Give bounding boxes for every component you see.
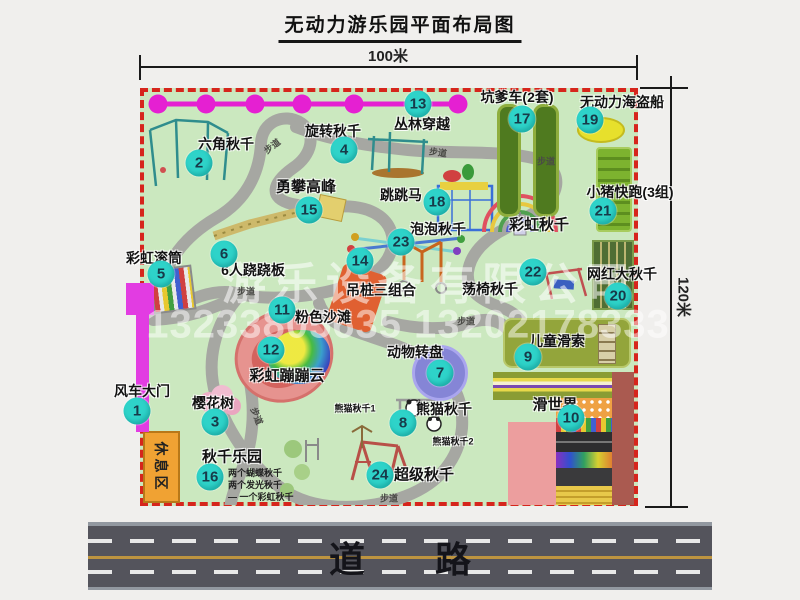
park-layout-plan: 无动力游乐园平面布局图 100米 120米 (0, 0, 800, 600)
attraction-label-14: 吊桩三组合 (346, 280, 416, 300)
attraction-label: 熊猫秋千2 (432, 435, 473, 448)
attraction-label-4: 旋转秋千 (305, 121, 361, 141)
attraction-number-22: 22 (520, 259, 547, 286)
road: 道路 (88, 522, 712, 590)
slide-band-rainbow-gradient (556, 452, 612, 468)
slide-band-yellow-wavy (556, 486, 612, 505)
dim-top-line (140, 66, 637, 68)
dim-right-tick-top2 (670, 76, 672, 100)
attraction-number-23: 23 (388, 229, 415, 256)
attraction-number-3: 3 (202, 409, 229, 436)
attraction-label-11: 粉色沙滩 (295, 307, 351, 327)
attraction-number-2: 2 (186, 150, 213, 177)
slide-world-pink-pad (508, 422, 556, 505)
attraction-label-8: 熊猫秋千 (416, 399, 472, 419)
road-label: 道路 (259, 531, 541, 583)
attraction-number-12: 12 (258, 337, 285, 364)
swing-park-note-3: — 一个彩虹秋千 (228, 490, 294, 503)
walkway-label: 步道 (380, 492, 398, 505)
attraction-number-1: 1 (124, 398, 151, 425)
slide-band-black (556, 432, 612, 452)
dim-right-label: 120米 (674, 277, 695, 317)
attraction-number-15: 15 (296, 197, 323, 224)
attraction-label-17: 坑爹车(2套) (480, 87, 553, 107)
attraction-number-6: 6 (211, 241, 238, 268)
walkway-label: 步道 (537, 155, 555, 168)
attraction-label-20: 网红大秋千 (587, 264, 657, 284)
windmill-gate-top (126, 283, 154, 315)
walkway-label: 步道 (237, 285, 255, 298)
attraction-label-23: 泡泡秋千 (410, 219, 466, 239)
slide-world-side-strip (612, 372, 634, 505)
dim-top-label: 100米 (368, 45, 408, 66)
attraction-label-15: 勇攀高峰 (276, 176, 336, 197)
attraction-label-18: 跳跳马 (380, 185, 422, 205)
attraction-label-22: 荡椅秋千 (462, 279, 518, 299)
attraction-number-21: 21 (590, 198, 617, 225)
attraction-number-8: 8 (390, 410, 417, 437)
walkway-label: 步道 (428, 144, 448, 159)
zipline-ladder (598, 324, 616, 364)
dim-right-line (670, 88, 672, 507)
attraction-label-12: 彩虹蹦蹦云 (249, 365, 324, 386)
attraction-number-11: 11 (269, 297, 296, 324)
attraction-number-9: 9 (515, 344, 542, 371)
attraction-number-14: 14 (347, 248, 374, 275)
attraction-number-17: 17 (509, 106, 536, 133)
dim-right-tick-top (640, 87, 688, 89)
attraction-number-18: 18 (424, 189, 451, 216)
rest-area-label: 休息区 (151, 442, 171, 493)
attraction-number-20: 20 (605, 283, 632, 310)
attraction-number-16: 16 (197, 464, 224, 491)
attraction-number-4: 4 (331, 137, 358, 164)
attraction-number-7: 7 (427, 360, 454, 387)
dim-right-tick-bottom (645, 506, 688, 508)
attraction-label-13: 丛林穿越 (394, 114, 450, 134)
slide-band-dark (556, 468, 612, 486)
attraction-number-19: 19 (577, 107, 604, 134)
dim-top-tick-right (636, 55, 638, 80)
page-title: 无动力游乐园平面布局图 (278, 10, 521, 43)
walkway-label: 步道 (457, 315, 475, 328)
attraction-label: 熊猫秋千1 (334, 402, 375, 415)
attraction-number-10: 10 (558, 405, 585, 432)
attraction-number-13: 13 (405, 91, 432, 118)
attraction-number-24: 24 (367, 462, 394, 489)
attraction-number-5: 5 (148, 261, 175, 288)
attraction-label-24: 超级秋千 (394, 464, 454, 485)
attraction-label-7: 动物转盘 (387, 342, 443, 362)
dim-top-tick-left (139, 55, 141, 80)
attraction-label: 彩虹秋千 (509, 214, 569, 235)
